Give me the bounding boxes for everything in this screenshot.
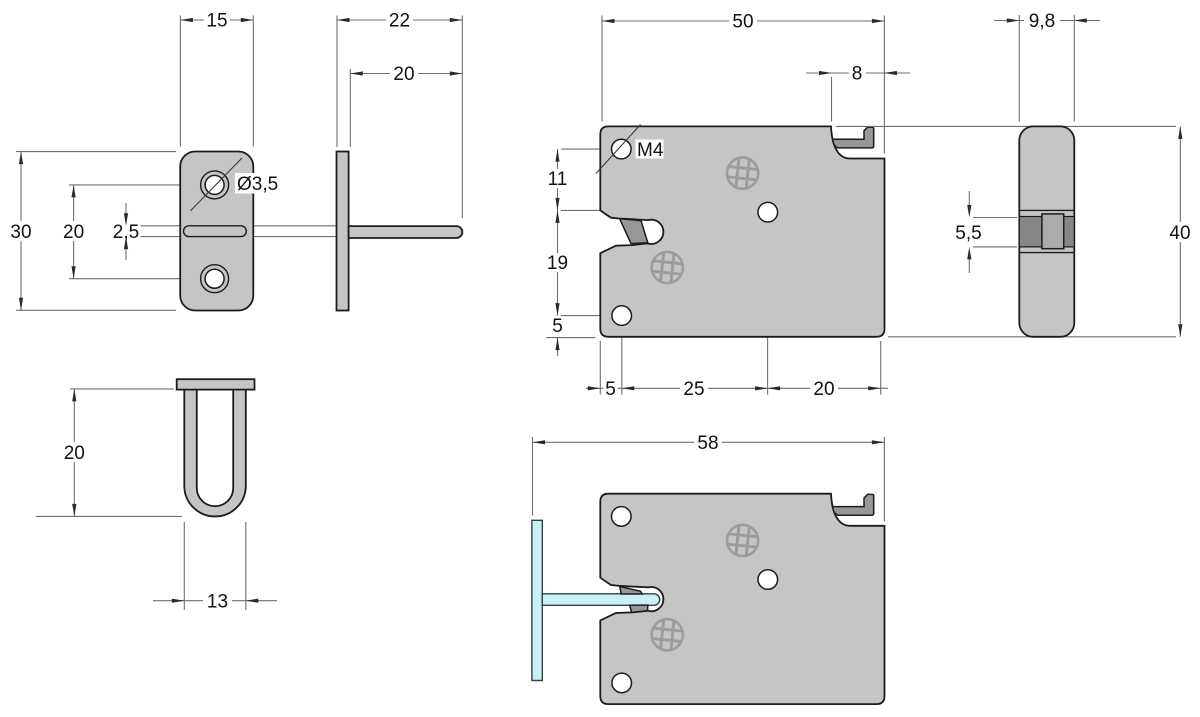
svg-text:2,5: 2,5 [113, 222, 139, 243]
svg-text:20: 20 [813, 379, 834, 400]
svg-text:9,8: 9,8 [1029, 11, 1055, 32]
svg-text:8: 8 [852, 64, 863, 85]
svg-text:58: 58 [697, 433, 718, 454]
svg-text:15: 15 [206, 11, 227, 32]
svg-text:5: 5 [552, 316, 563, 337]
svg-text:5,5: 5,5 [955, 223, 981, 244]
svg-text:50: 50 [732, 12, 753, 33]
svg-text:20: 20 [393, 64, 414, 85]
svg-text:19: 19 [547, 253, 568, 274]
svg-text:5: 5 [605, 379, 616, 400]
svg-text:11: 11 [548, 169, 568, 190]
svg-text:Ø3,5: Ø3,5 [237, 174, 278, 195]
svg-text:20: 20 [63, 222, 84, 243]
svg-text:M4: M4 [637, 140, 664, 161]
svg-text:22: 22 [389, 11, 410, 32]
svg-text:13: 13 [207, 591, 228, 612]
svg-text:25: 25 [683, 379, 704, 400]
svg-text:20: 20 [64, 443, 85, 464]
svg-text:40: 40 [1169, 223, 1190, 244]
svg-text:30: 30 [10, 222, 31, 243]
